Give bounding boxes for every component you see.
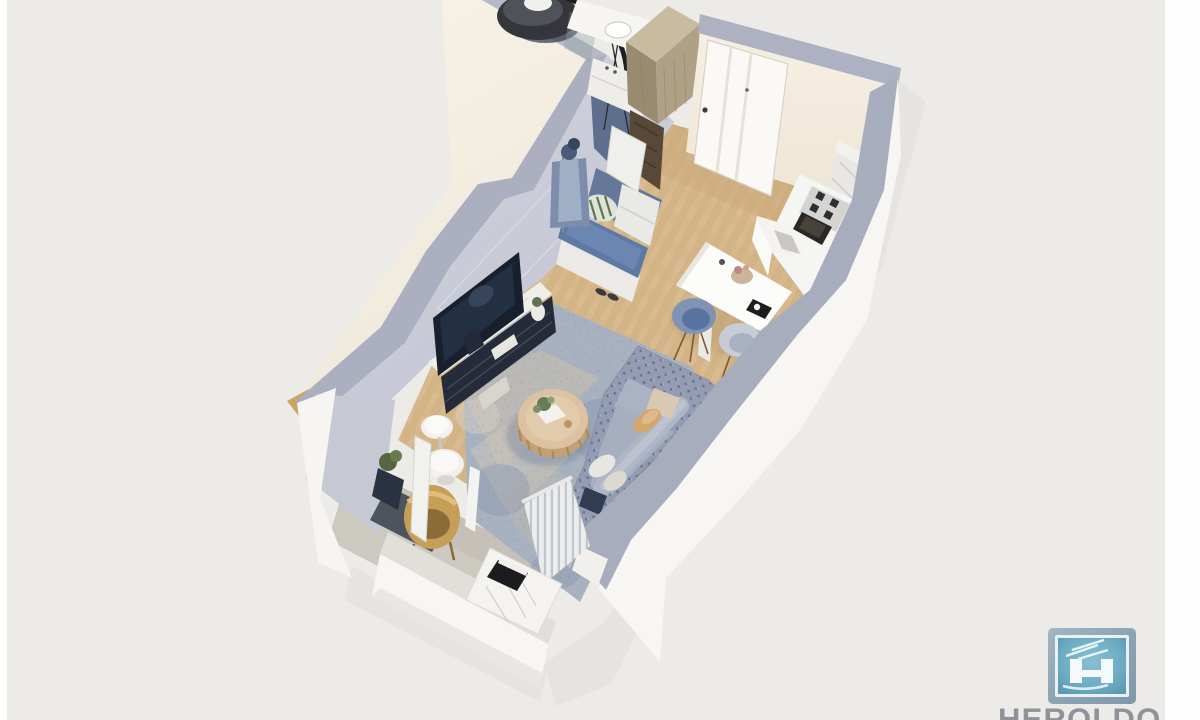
svg-text:HEROLDO: HEROLDO xyxy=(998,702,1161,720)
